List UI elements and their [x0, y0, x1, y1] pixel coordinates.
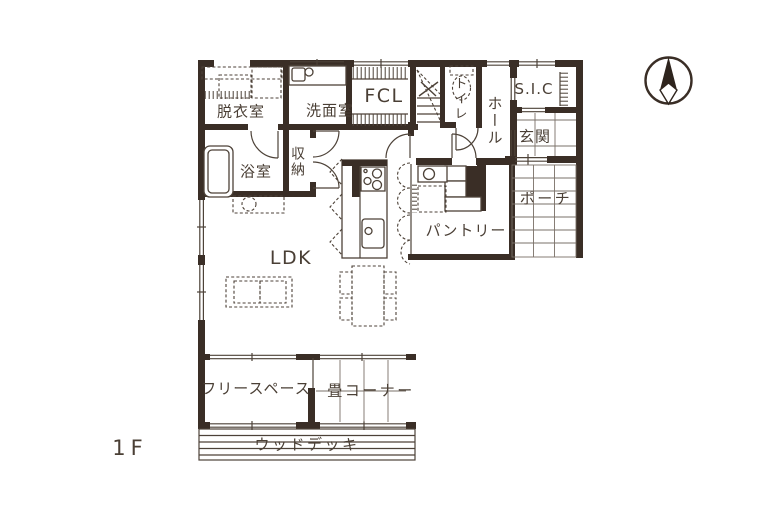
- room-label-porch: ポーチ: [520, 188, 573, 209]
- room-label-washroom: 洗面室: [306, 100, 354, 121]
- dining-table: [352, 266, 384, 326]
- floor-label: 1F: [112, 436, 147, 460]
- room-label-pantry: パントリー: [426, 220, 507, 241]
- washbasin: [418, 166, 447, 212]
- kitchen-unit: [342, 160, 387, 258]
- compass-icon: [646, 57, 692, 104]
- porch-tiles: [512, 165, 576, 257]
- staircase-upper: [417, 70, 440, 122]
- tv-board: [233, 196, 284, 213]
- pantry-shelf-hatch: [412, 183, 417, 213]
- room-label-entrance: 玄関: [519, 126, 551, 147]
- floor-plan-canvas: 脱衣室 洗面室 FCL トイレ ホール S.I.C 玄関 ポーチ パントリー 浴…: [0, 0, 780, 520]
- refrigerator-space: [418, 186, 446, 212]
- washroom-sink: [289, 66, 346, 85]
- room-label-toilet: トイレ: [450, 77, 469, 122]
- room-label-dressing-room: 脱衣室: [217, 101, 265, 122]
- bathtub: [204, 146, 233, 197]
- room-label-bathroom: 浴室: [240, 161, 272, 182]
- room-label-hall: ホール: [485, 96, 506, 147]
- room-label-family-closet: FCL: [364, 85, 403, 107]
- room-label-storage: 収納: [287, 146, 307, 178]
- room-label-ldk: LDK: [270, 247, 312, 269]
- room-label-tatami-corner: 畳コーナー: [327, 380, 415, 401]
- room-label-wood-deck: ウッドデッキ: [254, 434, 359, 455]
- room-label-free-space: フリースペース: [201, 378, 310, 399]
- room-label-shoe-in-closet: S.I.C: [515, 80, 554, 98]
